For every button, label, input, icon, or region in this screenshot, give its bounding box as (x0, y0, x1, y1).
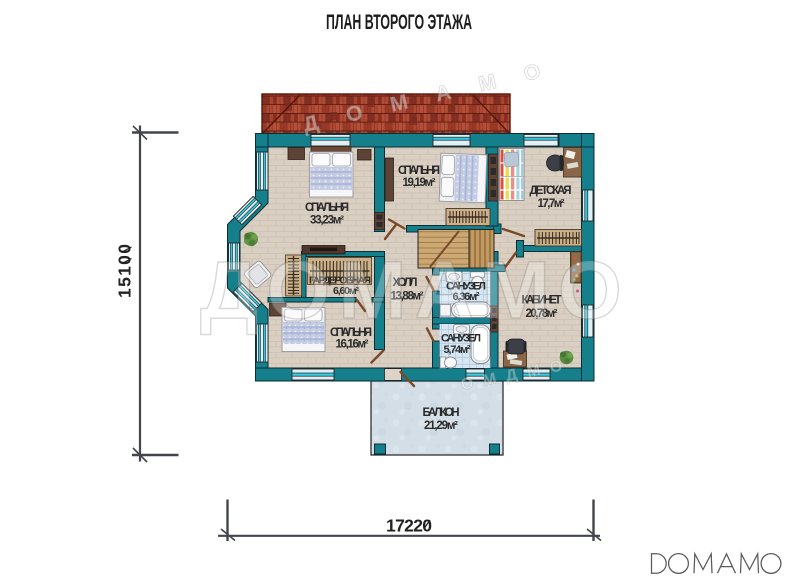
svg-text:ДОМАМО: ДОМАМО (200, 245, 630, 336)
svg-text:5,74м²: 5,74м² (444, 344, 471, 356)
svg-text:БАЛКОН: БАЛКОН (423, 407, 460, 419)
svg-text:33,23м²: 33,23м² (310, 215, 344, 227)
svg-text:СПАЛЬНЯ: СПАЛЬНЯ (398, 165, 440, 177)
svg-text:17,7м²: 17,7м² (538, 198, 565, 210)
svg-text:17220: 17220 (386, 516, 432, 536)
svg-text:16,16м²: 16,16м² (336, 339, 369, 351)
svg-text:ПЛАН ВТОРОГО ЭТАЖА: ПЛАН ВТОРОГО ЭТАЖА (326, 10, 472, 34)
svg-text:15100: 15100 (115, 244, 135, 298)
svg-text:21,29м²: 21,29м² (424, 420, 458, 432)
svg-text:ДЕТСКАЯ: ДЕТСКАЯ (530, 185, 572, 197)
svg-text:СПАЛЬНЯ: СПАЛЬНЯ (305, 202, 349, 214)
svg-text:19,19м²: 19,19м² (403, 177, 436, 189)
